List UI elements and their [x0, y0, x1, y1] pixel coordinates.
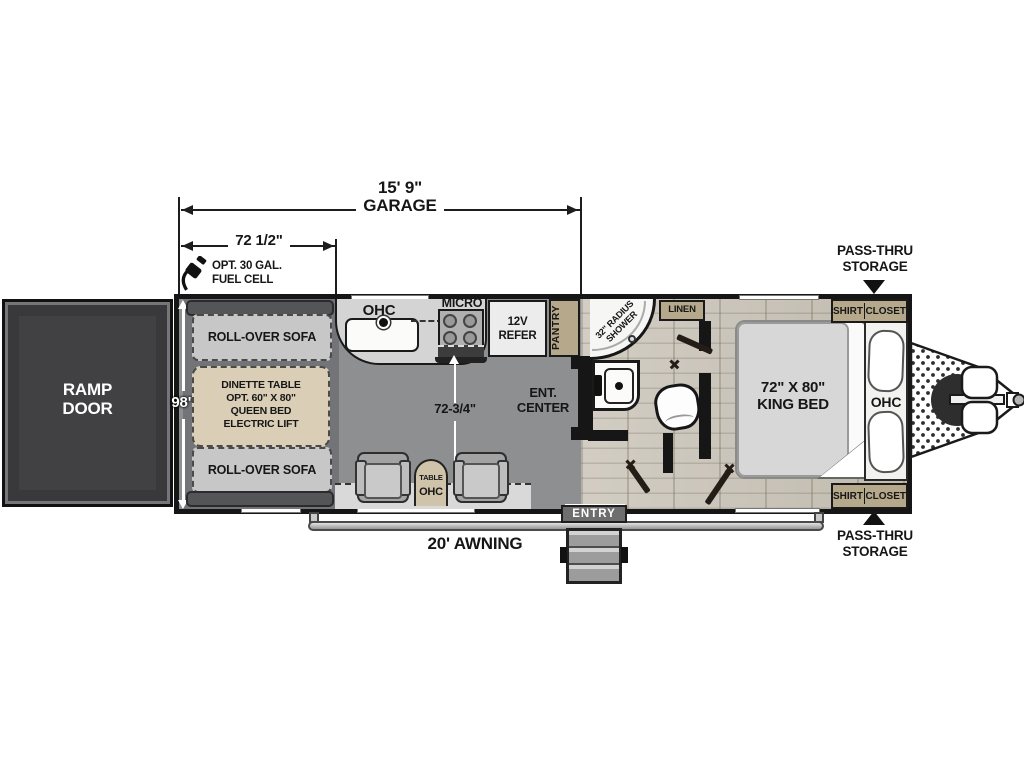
- burner-3: [443, 331, 457, 345]
- interior-dim-arrow-up: [449, 355, 459, 364]
- window-bottom-garage1: [241, 508, 301, 513]
- step-bracket-left: [560, 547, 567, 563]
- stove-front-panel: [438, 345, 484, 357]
- pillow-top: [867, 329, 905, 392]
- garage-dim-arrow-left: [182, 205, 193, 215]
- stove: [438, 309, 484, 357]
- front-dim-arrow-left: [182, 241, 193, 251]
- pantry: PANTRY: [549, 299, 580, 357]
- garage-dim-ext-right: [580, 197, 582, 297]
- ent-center-label: ENT. CENTER: [511, 385, 575, 415]
- ent-center-wall: [578, 356, 593, 440]
- king-bed: 72" X 80" KING BED: [737, 322, 849, 477]
- kitchen-ohc-label: OHC: [347, 303, 411, 319]
- step-tread: [569, 548, 619, 565]
- burner-4: [463, 331, 477, 345]
- garage-dim-label: 15' 9" GARAGE: [320, 179, 480, 215]
- hitch-ball: [1014, 395, 1024, 406]
- vanity-sink: [604, 368, 634, 404]
- propane-tank-1: [962, 367, 997, 398]
- side-table: TABLE OHC: [414, 459, 448, 506]
- shower-drain: [628, 335, 636, 343]
- shirt-closet-top: SHIRTCLOSET: [831, 299, 908, 323]
- step-tread: [569, 531, 619, 548]
- fuel-pump-icon: [180, 256, 208, 292]
- pillow-bottom: [867, 410, 905, 473]
- width-dim-line-top: [182, 307, 185, 391]
- interior-dim-line-top: [454, 363, 457, 403]
- floorplan-canvas: 15' 9" GARAGE 72 1/2" OPT. 30 GAL. FUEL …: [0, 0, 1024, 768]
- chair-left: [357, 452, 409, 503]
- width-dim-line-bottom: [182, 419, 185, 501]
- toilet-seat-line: [664, 413, 694, 428]
- refrigerator: 12V REFER: [488, 300, 547, 357]
- front-dim-label: 72 1/2": [200, 233, 318, 249]
- trailer-hitch: [905, 330, 1024, 475]
- chair-right: [455, 452, 507, 503]
- window-bottom-bedroom: [735, 508, 820, 513]
- linen-cabinet: LINEN: [659, 300, 705, 321]
- bath-wall-mid: [699, 373, 711, 459]
- shirt-closet-bottom: SHIRTCLOSET: [831, 483, 908, 509]
- garage-length-word: GARAGE: [356, 197, 443, 215]
- dinette-table: DINETTE TABLE OPT. 60" X 80" QUEEN BED E…: [192, 366, 330, 447]
- propane-tank-2: [962, 402, 997, 433]
- window-top-bedroom: [739, 295, 819, 300]
- passthru-storage-bottom: PASS-THRU STORAGE: [818, 528, 932, 560]
- awning-label: 20' AWNING: [380, 535, 570, 553]
- bath-vanity: [592, 360, 640, 411]
- bedroom-door-hinge: [722, 461, 736, 475]
- garage-length-value: 15' 9": [320, 179, 480, 197]
- kitchen-sink: [345, 318, 419, 352]
- step-tread: [569, 565, 619, 580]
- ramp-door: RAMP DOOR: [2, 299, 173, 507]
- vanity-drain: [615, 382, 623, 390]
- fuel-cell-note: OPT. 30 GAL. FUEL CELL: [212, 259, 322, 287]
- sofa-rear: ROLL-OVER SOFA: [192, 447, 332, 493]
- ent-center-wall-tab-bottom: [571, 427, 578, 440]
- chair-seat: [364, 463, 402, 499]
- garage-dim-arrow-right: [567, 205, 578, 215]
- passthru-storage-top: PASS-THRU STORAGE: [818, 243, 932, 275]
- ramp-door-label: RAMP DOOR: [5, 380, 170, 418]
- faucet-icon: [379, 318, 388, 327]
- step-bracket-right: [621, 547, 628, 563]
- entry-door-plate: ENTRY: [561, 505, 627, 523]
- trailer-body: 98" ROLL-OVER SOFA DINETTE TABLE OPT. 60…: [174, 294, 912, 514]
- bath-door-2-hinge: [623, 457, 637, 471]
- sofa-rear-backrest: [186, 491, 334, 507]
- stove-vent: [435, 357, 487, 363]
- bedroom-ohc-panel: OHC: [864, 320, 908, 481]
- bath-wall-below-toilet: [663, 433, 673, 473]
- entry-steps: [566, 528, 622, 584]
- sofa-front: ROLL-OVER SOFA: [192, 314, 332, 361]
- bed-label: 72" X 80" KING BED: [739, 379, 847, 413]
- burner-1: [443, 314, 457, 328]
- passthru-top-arrow: [863, 280, 885, 294]
- front-dim-ext-right: [335, 239, 337, 295]
- chair-seat: [462, 463, 500, 499]
- micro-label: MICRO: [437, 297, 487, 310]
- bath-wall-below-vanity: [588, 430, 628, 441]
- interior-dim-label: 72-3/4": [422, 402, 488, 416]
- bath-door-1-hinge: [667, 357, 681, 371]
- bedroom-ohc-label: OHC: [866, 395, 906, 410]
- burner-2: [463, 314, 477, 328]
- ent-center-wall-tab-top: [571, 356, 578, 369]
- vanity-faucet: [594, 375, 602, 396]
- front-dim-arrow-right: [323, 241, 334, 251]
